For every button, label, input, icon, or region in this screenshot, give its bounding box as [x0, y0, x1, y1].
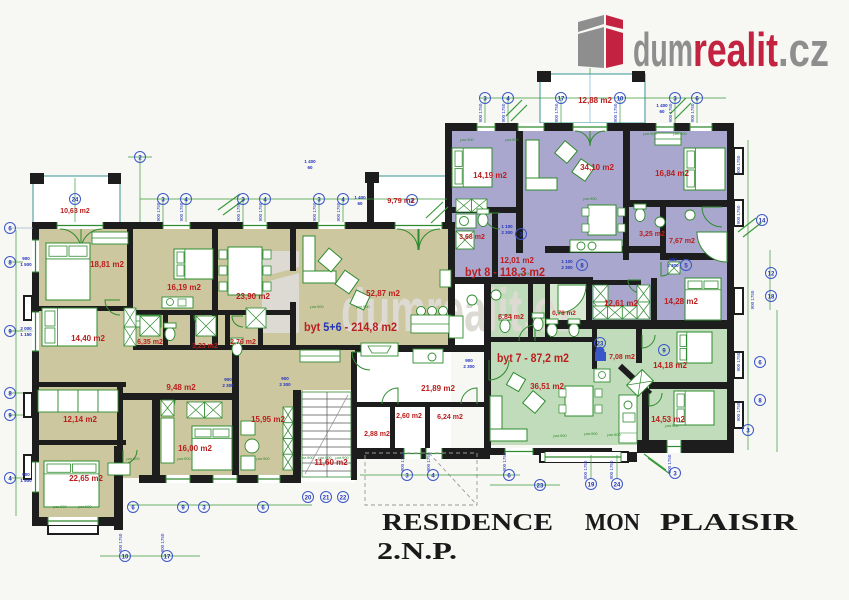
svg-text:22,65 m2: 22,65 m2: [69, 474, 103, 483]
svg-text:900: 900: [281, 376, 289, 381]
svg-text:16,00 m2: 16,00 m2: [178, 444, 212, 453]
svg-text:16,84 m2: 16,84 m2: [655, 169, 689, 178]
svg-text:600: 600: [669, 257, 677, 262]
svg-text:16,19 m2: 16,19 m2: [167, 283, 201, 292]
svg-text:900 1750: 900 1750: [736, 155, 741, 174]
svg-text:17: 17: [558, 97, 565, 103]
svg-text:par.900: par.900: [584, 431, 598, 436]
svg-text:900 1750: 900 1750: [736, 352, 741, 371]
svg-text:2 300: 2 300: [561, 265, 573, 270]
svg-text:par.900: par.900: [177, 456, 191, 461]
svg-text:3,23 m2: 3,23 m2: [192, 343, 218, 350]
svg-text:900 1750: 900 1750: [156, 202, 161, 221]
svg-text:36,51 m2: 36,51 m2: [530, 382, 564, 391]
svg-text:2,76 m2: 2,76 m2: [230, 339, 256, 346]
svg-text:6,35 m2: 6,35 m2: [137, 339, 163, 346]
svg-text:900 1750: 900 1750: [179, 202, 184, 221]
svg-text:24: 24: [614, 483, 621, 489]
svg-text:900: 900: [22, 256, 30, 261]
svg-text:byt 7 - 87,2 m2: byt 7 - 87,2 m2: [497, 351, 569, 365]
svg-text:byt 5+6 - 214,8 m2: byt 5+6 - 214,8 m2: [304, 320, 397, 334]
svg-text:23: 23: [597, 342, 604, 348]
svg-text:14: 14: [759, 219, 766, 225]
svg-text:900 1750: 900 1750: [478, 103, 483, 122]
svg-text:22: 22: [340, 496, 347, 502]
svg-text:PLAISIR: PLAISIR: [660, 510, 798, 536]
svg-text:par.900: par.900: [310, 304, 324, 309]
svg-text:1 400: 1 400: [354, 195, 366, 200]
svg-text:900 1750: 900 1750: [312, 202, 317, 221]
svg-text:6,84 m2: 6,84 m2: [498, 314, 524, 321]
svg-text:.cz: .cz: [778, 23, 829, 76]
svg-text:2 000: 2 000: [20, 326, 32, 331]
svg-text:900 1750: 900 1750: [426, 452, 431, 471]
svg-text:6,24 m2: 6,24 m2: [437, 414, 463, 421]
svg-text:19: 19: [588, 483, 595, 489]
svg-text:18: 18: [768, 295, 775, 301]
svg-text:900 1750: 900 1750: [554, 103, 559, 122]
svg-text:par.900: par.900: [53, 504, 67, 509]
svg-text:3,25 m2: 3,25 m2: [639, 231, 665, 238]
svg-text:21,89 m2: 21,89 m2: [421, 384, 455, 393]
svg-text:900 1750: 900 1750: [258, 202, 263, 221]
svg-text:par.900: par.900: [356, 304, 370, 309]
svg-text:2 300: 2 300: [279, 382, 291, 387]
svg-text:12,01 m2: 12,01 m2: [500, 256, 534, 265]
svg-text:par.900: par.900: [643, 131, 657, 136]
svg-text:RESIDENCE: RESIDENCE: [382, 510, 553, 536]
svg-text:9,79 m2: 9,79 m2: [387, 196, 415, 205]
svg-text:12,88 m2: 12,88 m2: [578, 96, 612, 105]
svg-text:MON: MON: [585, 510, 641, 536]
svg-text:900 1750: 900 1750: [736, 205, 741, 224]
svg-text:23,90 m2: 23,90 m2: [236, 292, 270, 301]
svg-text:dum: dum: [633, 23, 693, 76]
svg-text:10,63 m2: 10,63 m2: [60, 208, 90, 215]
svg-text:14,18 m2: 14,18 m2: [653, 361, 687, 370]
svg-text:12,61 m2: 12,61 m2: [604, 299, 638, 308]
svg-text:52,87 m2: 52,87 m2: [366, 289, 400, 298]
svg-text:900: 900: [22, 472, 30, 477]
svg-text:0,78 m2: 0,78 m2: [552, 310, 576, 317]
svg-text:par.900: par.900: [553, 433, 567, 438]
svg-text:15,95 m2: 15,95 m2: [251, 415, 285, 424]
svg-text:par.900: par.900: [583, 196, 597, 201]
svg-text:par.900: par.900: [505, 137, 519, 142]
svg-text:par.900: par.900: [256, 456, 270, 461]
svg-text:900 1750: 900 1750: [118, 533, 123, 552]
svg-text:900 1750: 900 1750: [583, 460, 588, 479]
svg-text:900 1750: 900 1750: [668, 103, 673, 122]
svg-text:23: 23: [537, 484, 544, 490]
svg-text:14,28 m2: 14,28 m2: [664, 297, 698, 306]
svg-text:900 1750: 900 1750: [160, 533, 165, 552]
svg-text:2 300: 2 300: [222, 383, 234, 388]
svg-text:900 1750: 900 1750: [336, 202, 341, 221]
svg-text:900 1750: 900 1750: [690, 103, 695, 122]
svg-text:par.900: par.900: [300, 455, 314, 460]
svg-text:17: 17: [164, 555, 171, 561]
svg-text:60: 60: [659, 109, 665, 114]
svg-text:par.900: par.900: [607, 432, 621, 437]
svg-text:2 300: 2 300: [463, 364, 475, 369]
svg-text:par.900: par.900: [460, 137, 474, 142]
svg-text:byt 8 - 118,3 m2: byt 8 - 118,3 m2: [465, 265, 545, 279]
svg-text:18,81 m2: 18,81 m2: [90, 260, 124, 269]
svg-text:par.900: par.900: [78, 504, 92, 509]
svg-text:14,53 m2: 14,53 m2: [651, 415, 685, 424]
svg-text:21: 21: [323, 496, 330, 502]
svg-text:900: 900: [465, 358, 473, 363]
svg-text:900 1750: 900 1750: [502, 452, 507, 471]
svg-text:34,10 m2: 34,10 m2: [580, 163, 614, 172]
svg-text:24: 24: [72, 198, 79, 204]
svg-text:900 1750: 900 1750: [609, 460, 614, 479]
svg-text:900 1750: 900 1750: [667, 454, 672, 473]
svg-text:900 1750: 900 1750: [400, 452, 405, 471]
svg-text:900 1750: 900 1750: [236, 202, 241, 221]
svg-text:realit: realit: [693, 23, 778, 76]
svg-text:2.N.P.: 2.N.P.: [377, 539, 457, 565]
svg-text:2,60 m2: 2,60 m2: [396, 413, 422, 420]
svg-text:60: 60: [357, 201, 363, 206]
svg-text:1 150: 1 150: [20, 332, 32, 337]
svg-text:2,88 m2: 2,88 m2: [364, 431, 390, 438]
svg-text:10: 10: [617, 97, 624, 103]
svg-text:900 1750: 900 1750: [750, 290, 755, 309]
svg-text:10: 10: [122, 555, 129, 561]
svg-text:1 500: 1 500: [20, 478, 32, 483]
svg-text:20: 20: [305, 496, 312, 502]
svg-text:900 1750: 900 1750: [501, 103, 506, 122]
svg-text:900: 900: [224, 377, 232, 382]
svg-text:900 1750: 900 1750: [736, 402, 741, 421]
svg-text:1 500: 1 500: [20, 262, 32, 267]
svg-text:1 400: 1 400: [304, 159, 316, 164]
svg-text:60: 60: [307, 165, 313, 170]
svg-text:14,19 m2: 14,19 m2: [473, 171, 507, 180]
svg-text:9,48 m2: 9,48 m2: [166, 383, 196, 392]
svg-text:1 100: 1 100: [501, 224, 513, 229]
svg-text:2 300: 2 300: [667, 263, 679, 268]
svg-text:par.900: par.900: [673, 131, 687, 136]
svg-text:2 300: 2 300: [501, 230, 513, 235]
svg-text:12,14 m2: 12,14 m2: [63, 415, 97, 424]
svg-text:900 1750: 900 1750: [613, 103, 618, 122]
svg-text:3,68 m2: 3,68 m2: [459, 234, 485, 241]
svg-text:11,60 m2: 11,60 m2: [314, 458, 348, 467]
svg-text:14,40 m2: 14,40 m2: [71, 334, 105, 343]
svg-text:12: 12: [768, 272, 775, 278]
svg-text:1 100: 1 100: [561, 259, 573, 264]
svg-text:par.900: par.900: [126, 456, 140, 461]
svg-text:1 400: 1 400: [656, 103, 668, 108]
svg-text:7,08 m2: 7,08 m2: [609, 354, 635, 361]
svg-text:7,67 m2: 7,67 m2: [669, 238, 695, 245]
